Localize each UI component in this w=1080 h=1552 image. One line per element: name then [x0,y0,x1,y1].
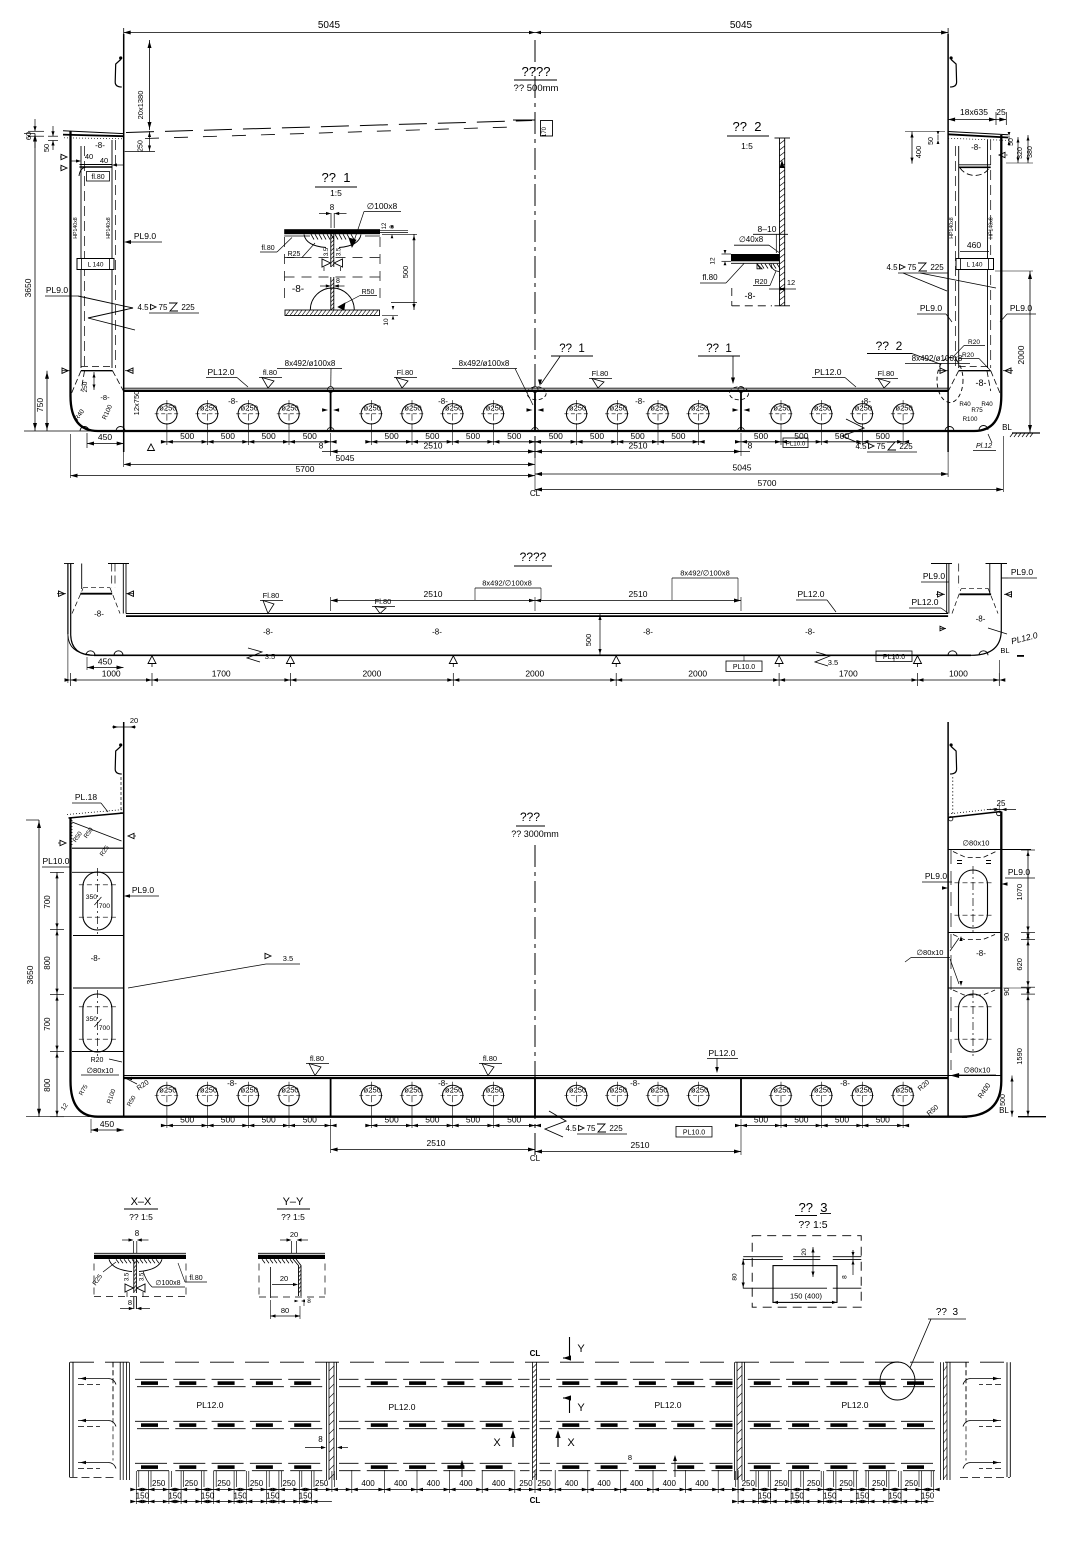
svg-text:8x492/ø100x8: 8x492/ø100x8 [285,359,336,368]
svg-text:Fl.80: Fl.80 [375,597,392,606]
svg-text:fl.80: fl.80 [483,1054,497,1063]
svg-text:500: 500 [754,431,768,441]
svg-text:?? 1:5: ?? 1:5 [281,1212,305,1222]
svg-text:-8-: -8- [95,141,105,150]
svg-text:500: 500 [262,1115,276,1125]
svg-text:500: 500 [425,1115,439,1125]
svg-text:80: 80 [732,1273,739,1281]
svg-text:-8-: -8- [976,949,986,958]
svg-text:3.5: 3.5 [265,652,275,661]
svg-text:-8-: -8- [861,397,871,406]
svg-text:R75: R75 [971,407,983,414]
svg-text:CL: CL [530,489,541,498]
svg-text:Y: Y [577,1402,585,1414]
svg-text:4.5: 4.5 [137,303,149,312]
svg-text:150: 150 [168,1492,182,1501]
svg-text:4.5: 4.5 [565,1124,577,1133]
svg-text:ø250: ø250 [895,404,912,413]
svg-text:-8-: -8- [94,610,104,619]
svg-text:?? 1: ?? 1 [559,343,585,355]
svg-text:fl.80: fl.80 [310,1054,324,1063]
svg-text:500: 500 [180,1115,194,1125]
svg-text:2000: 2000 [362,669,381,679]
svg-text:-8-: -8- [840,1079,850,1088]
svg-text:250: 250 [217,1479,231,1488]
svg-text:8–10: 8–10 [758,224,777,234]
svg-text:PL12.0: PL12.0 [197,1400,224,1410]
svg-text:400: 400 [914,146,923,159]
svg-text:-8-: -8- [971,143,981,152]
svg-text:500: 500 [401,266,410,279]
svg-text:PL12.0: PL12.0 [815,367,842,377]
svg-text:BL: BL [1002,423,1012,432]
svg-text:380: 380 [1027,146,1034,158]
svg-text:4.5: 4.5 [855,442,867,451]
svg-text:ø250: ø250 [814,1085,831,1094]
svg-text:1:5: 1:5 [330,188,342,198]
svg-text:1700: 1700 [839,669,858,679]
svg-text:150: 150 [791,1492,805,1501]
svg-text:500: 500 [221,1115,235,1125]
svg-text:225: 225 [609,1124,623,1133]
svg-text:?? 1:5: ?? 1:5 [129,1212,153,1222]
svg-text:ø250: ø250 [281,404,298,413]
svg-text:4.5: 4.5 [886,263,898,272]
svg-text:250: 250 [138,140,145,152]
svg-text:12: 12 [787,278,795,287]
svg-text:????: ???? [522,64,551,79]
svg-text:2000: 2000 [525,669,544,679]
svg-text:700: 700 [43,895,52,909]
svg-text:PL12.0: PL12.0 [655,1400,682,1410]
svg-text:500: 500 [507,431,521,441]
svg-text:500: 500 [385,431,399,441]
svg-text:5045: 5045 [318,20,341,31]
svg-text:2510: 2510 [629,589,648,599]
svg-text:?? 2: ?? 2 [876,339,903,353]
svg-text:PL9.0: PL9.0 [923,571,945,581]
svg-text:ø250: ø250 [855,1085,872,1094]
svg-text:???: ??? [520,810,540,824]
svg-text:8: 8 [319,441,324,451]
svg-text:R20: R20 [968,339,980,346]
svg-text:1000: 1000 [949,669,968,679]
svg-text:80: 80 [281,1306,289,1315]
svg-text:40: 40 [100,156,108,165]
svg-text:ø250: ø250 [159,1085,176,1094]
svg-text:250: 250 [807,1479,821,1488]
svg-text:ø250: ø250 [486,404,503,413]
svg-text:800: 800 [43,1078,52,1092]
svg-text:350: 350 [86,1016,98,1023]
svg-text:-8-: -8- [438,1079,448,1088]
svg-text:ø250: ø250 [569,1085,586,1094]
svg-text:R40: R40 [981,401,993,408]
svg-text:HP140x8: HP140x8 [106,217,112,238]
svg-text:450: 450 [98,432,112,442]
svg-text:8: 8 [628,1453,632,1462]
svg-text:∅80x10: ∅80x10 [917,948,944,957]
svg-text:450: 450 [98,657,112,667]
svg-text:-8-: -8- [635,397,645,406]
svg-text:BL: BL [999,1106,1009,1115]
svg-text:Y–Y: Y–Y [283,1196,304,1208]
svg-text:ø250: ø250 [569,404,586,413]
svg-text:3.5: 3.5 [283,954,293,963]
svg-text:R20: R20 [91,1057,104,1064]
svg-text:500: 500 [221,431,235,441]
svg-text:Y: Y [577,1343,585,1355]
svg-text:700: 700 [99,903,111,910]
svg-text:PL.18: PL.18 [75,792,97,802]
svg-text:PL10.0: PL10.0 [733,664,755,671]
svg-text:20: 20 [130,716,138,725]
svg-text:-8-: -8- [228,397,238,406]
svg-text:ø250: ø250 [773,404,790,413]
svg-text:?? 3: ?? 3 [799,1200,828,1215]
svg-text:25: 25 [996,107,1006,117]
svg-text:450: 450 [100,1119,114,1129]
svg-text:CL: CL [530,1349,541,1358]
svg-text:3650: 3650 [23,278,33,297]
svg-text:PL9.0: PL9.0 [920,303,942,313]
svg-text:90: 90 [1002,988,1011,996]
svg-text:250: 250 [315,1479,329,1488]
svg-text:500: 500 [794,431,808,441]
svg-text:?? 1: ?? 1 [322,170,351,185]
svg-text:ø250: ø250 [650,1085,667,1094]
svg-text:ø250: ø250 [159,404,176,413]
svg-text:12: 12 [382,222,388,229]
svg-text:2510: 2510 [631,1140,650,1150]
svg-text:PL10.0: PL10.0 [43,856,70,866]
svg-text:3.5: 3.5 [324,247,330,256]
svg-text:800: 800 [43,956,52,970]
svg-text:75: 75 [159,303,168,312]
svg-text:150: 150 [266,1492,280,1501]
svg-text:1590: 1590 [1015,1048,1024,1065]
svg-text:∅40x8: ∅40x8 [739,235,764,244]
svg-text:ø250: ø250 [610,404,627,413]
svg-text:L 140: L 140 [87,262,103,269]
svg-text:?? 3000mm: ?? 3000mm [511,829,559,839]
svg-text:PL9.0: PL9.0 [1010,303,1032,313]
svg-text:PL12.0: PL12.0 [389,1402,416,1412]
svg-text:fl.80: fl.80 [263,368,277,377]
svg-text:500: 500 [425,431,439,441]
svg-text:250: 250 [742,1479,756,1488]
svg-text:400: 400 [361,1479,375,1488]
svg-text:500: 500 [794,1115,808,1125]
svg-text:400: 400 [565,1479,579,1488]
svg-text:5045: 5045 [733,463,752,473]
svg-text:250: 250 [905,1479,919,1488]
svg-text:R20: R20 [962,352,974,359]
svg-text:250: 250 [872,1479,886,1488]
svg-text:225: 225 [930,263,944,272]
svg-text:150: 150 [136,1492,150,1501]
svg-text:150 (400): 150 (400) [790,1292,823,1301]
svg-text:PL9.0: PL9.0 [46,285,68,295]
svg-text:ø250: ø250 [610,1085,627,1094]
svg-text:PL12.0: PL12.0 [912,597,939,607]
svg-text:?? 2: ?? 2 [733,119,762,134]
svg-text:-8-: -8- [745,291,756,301]
svg-text:∅80x10: ∅80x10 [963,839,990,848]
svg-text:-8-: -8- [91,954,101,963]
svg-text:350: 350 [86,894,98,901]
svg-text:400: 400 [695,1479,709,1488]
svg-text:Fl.80: Fl.80 [878,369,895,378]
svg-text:400: 400 [394,1479,408,1488]
svg-text:20: 20 [280,1274,288,1283]
svg-text:PL9.0: PL9.0 [1011,567,1033,577]
svg-text:400: 400 [597,1479,611,1488]
svg-text:Pl.12: Pl.12 [976,443,992,450]
svg-text:250: 250 [519,1479,533,1488]
svg-text:150: 150 [299,1492,313,1501]
svg-text:-8-: -8- [100,393,110,402]
svg-text:40: 40 [85,152,93,161]
svg-text:∅100x8: ∅100x8 [367,201,398,211]
svg-text:ø250: ø250 [404,404,421,413]
svg-text:75: 75 [908,263,917,272]
svg-text:8: 8 [307,1298,311,1305]
svg-text:20: 20 [801,1248,808,1256]
svg-text:500: 500 [876,1115,890,1125]
svg-text:L 140: L 140 [966,262,982,269]
svg-text:R100: R100 [963,416,978,423]
svg-text:????: ???? [520,550,547,564]
svg-text:460: 460 [967,240,981,250]
svg-text:∅80x10: ∅80x10 [964,1066,991,1075]
svg-text:ø250: ø250 [895,1085,912,1094]
svg-text:500: 500 [180,431,194,441]
svg-text:R40: R40 [959,401,971,408]
svg-text:500: 500 [590,431,604,441]
svg-text:3650: 3650 [25,965,35,984]
svg-text:25: 25 [997,799,1006,808]
svg-text:ø250: ø250 [200,1085,217,1094]
svg-text:400: 400 [427,1479,441,1488]
svg-text:150: 150 [201,1492,215,1501]
svg-text:250: 250 [152,1479,166,1488]
svg-text:ø250: ø250 [404,1085,421,1094]
svg-text:12: 12 [710,257,717,265]
svg-text:ø250: ø250 [773,1085,790,1094]
svg-text:250: 250 [250,1479,264,1488]
svg-text:fl.80: fl.80 [702,273,718,282]
svg-text:5045: 5045 [336,453,355,463]
svg-text:60: 60 [24,132,33,140]
svg-text:500: 500 [671,431,685,441]
svg-text:HP140x8: HP140x8 [989,217,995,238]
svg-text:PL12.0: PL12.0 [842,1400,869,1410]
svg-text:250: 250 [282,1479,296,1488]
svg-text:500: 500 [262,431,276,441]
svg-text:HP140x8: HP140x8 [73,217,79,238]
svg-text:-8-: -8- [438,397,448,406]
svg-text:5700: 5700 [758,478,777,488]
svg-text:8: 8 [128,1298,132,1307]
svg-text:500: 500 [303,431,317,441]
svg-text:Fl.80: Fl.80 [263,591,280,600]
svg-text:500: 500 [835,1115,849,1125]
svg-text:ø250: ø250 [691,404,708,413]
svg-text:2510: 2510 [427,1138,446,1148]
svg-text:75: 75 [877,442,886,451]
svg-text:-8-: -8- [976,615,986,624]
svg-text:CL: CL [530,1496,541,1505]
svg-text:fl.80: fl.80 [91,174,104,181]
svg-text:-8-: -8- [227,1079,237,1088]
svg-text:ø250: ø250 [691,1085,708,1094]
svg-text:8x492/∅100x8: 8x492/∅100x8 [680,569,730,578]
svg-text:150: 150 [856,1492,870,1501]
svg-text:50: 50 [928,137,935,145]
svg-text:150: 150 [823,1492,837,1501]
svg-text:PL9.0: PL9.0 [925,871,947,881]
svg-text:2000: 2000 [688,669,707,679]
svg-text:750: 750 [35,398,45,412]
svg-text:ø250: ø250 [364,1085,381,1094]
svg-text:170: 170 [542,126,548,137]
svg-text:PL12.0: PL12.0 [798,589,825,599]
svg-text:150: 150 [758,1492,772,1501]
svg-text:500: 500 [1000,1094,1007,1106]
svg-text:2510: 2510 [629,441,648,451]
svg-text:50: 50 [42,144,51,152]
svg-text:ø250: ø250 [241,404,258,413]
svg-text:1070: 1070 [1015,884,1024,901]
svg-text:8x492/∅100x8: 8x492/∅100x8 [482,579,532,588]
svg-text:fl.80: fl.80 [189,1275,202,1282]
svg-text:90: 90 [1002,933,1011,941]
svg-text:PL9.0: PL9.0 [132,885,154,895]
svg-text:CL: CL [530,1154,541,1163]
svg-text:225: 225 [899,442,913,451]
svg-text:3.5: 3.5 [140,1272,146,1281]
svg-text:500: 500 [584,634,593,647]
svg-text:-8-: -8- [643,628,653,637]
svg-text:18x635: 18x635 [960,107,988,117]
svg-text:R25: R25 [288,251,301,258]
svg-text:8: 8 [135,1229,140,1238]
svg-text:ø250: ø250 [200,404,217,413]
svg-text:400: 400 [492,1479,506,1488]
svg-text:400: 400 [663,1479,677,1488]
svg-text:500: 500 [466,431,480,441]
svg-text:500: 500 [876,431,890,441]
svg-text:8: 8 [318,1435,323,1444]
svg-text:20: 20 [290,1230,298,1239]
svg-text:500: 500 [466,1115,480,1125]
svg-text:ø250: ø250 [814,404,831,413]
svg-text:150: 150 [888,1492,902,1501]
svg-text:620: 620 [1015,958,1024,971]
svg-text:3.5: 3.5 [125,1272,131,1281]
svg-text:320: 320 [1017,147,1024,159]
svg-text:∅80x10: ∅80x10 [87,1066,114,1075]
svg-text:X: X [567,1437,575,1449]
svg-text:5045: 5045 [730,20,753,31]
svg-text:-8-: -8- [263,628,273,637]
svg-text:5700: 5700 [296,464,315,474]
svg-text:BL: BL [1000,646,1009,655]
svg-text:1700: 1700 [212,669,231,679]
svg-text:500: 500 [303,1115,317,1125]
svg-text:-8-: -8- [292,284,304,295]
svg-text:250: 250 [839,1479,853,1488]
svg-text:8: 8 [748,441,753,451]
svg-text:500: 500 [385,1115,399,1125]
svg-text:-8-: -8- [805,628,815,637]
svg-text:500: 500 [631,431,645,441]
svg-text:2000: 2000 [1016,345,1026,364]
svg-text:ø250: ø250 [241,1085,258,1094]
svg-text:500: 500 [507,1115,521,1125]
svg-text:250: 250 [185,1479,199,1488]
svg-text:-8-: -8- [630,1079,640,1088]
svg-text:R20: R20 [755,279,768,286]
svg-text:X: X [493,1437,501,1449]
svg-text:?? 1: ?? 1 [706,343,732,355]
svg-text:?? 3: ?? 3 [936,1307,959,1318]
svg-text:20x1380: 20x1380 [136,91,145,120]
svg-text:10: 10 [383,318,390,326]
svg-text:150: 150 [921,1492,935,1501]
svg-text:Fl.80: Fl.80 [397,368,414,377]
svg-text:-8-: -8- [976,378,987,388]
svg-text:2510: 2510 [424,589,443,599]
svg-text:2510: 2510 [424,441,443,451]
svg-text:250: 250 [537,1479,551,1488]
svg-text:?? 1:5: ?? 1:5 [798,1219,827,1231]
svg-text:PL12.0: PL12.0 [709,1048,736,1058]
svg-text:3.5: 3.5 [828,658,838,667]
svg-text:700: 700 [43,1017,52,1031]
svg-text:8: 8 [842,1275,849,1279]
svg-text:-8-: -8- [432,628,442,637]
svg-text:8x492/ø100x8: 8x492/ø100x8 [459,359,510,368]
svg-text:8: 8 [330,203,335,212]
svg-text:fl.80: fl.80 [261,245,274,252]
svg-text:HP140x8: HP140x8 [949,217,955,238]
svg-text:12x750: 12x750 [132,391,141,416]
svg-text:225: 225 [181,303,195,312]
svg-text:PL9.0: PL9.0 [134,231,156,241]
svg-text:75: 75 [587,1124,596,1133]
svg-text:X–X: X–X [131,1196,152,1208]
svg-text:150: 150 [234,1492,248,1501]
svg-text:Fl.80: Fl.80 [592,369,609,378]
svg-text:ø250: ø250 [650,404,667,413]
svg-text:ø250: ø250 [364,404,381,413]
svg-text:500: 500 [754,1115,768,1125]
svg-text:PL10.0: PL10.0 [683,1130,705,1137]
svg-text:∅100x8: ∅100x8 [155,1280,180,1287]
svg-text:500: 500 [549,431,563,441]
svg-text:PL12.0: PL12.0 [208,367,235,377]
svg-text:8: 8 [336,278,340,285]
svg-text:250: 250 [774,1479,788,1488]
svg-text:400: 400 [630,1479,644,1488]
svg-text:ø250: ø250 [281,1085,298,1094]
svg-text:700: 700 [99,1025,111,1032]
svg-text:?? 500mm: ?? 500mm [514,83,559,94]
svg-text:1:5: 1:5 [741,141,753,151]
svg-text:1000: 1000 [102,669,121,679]
